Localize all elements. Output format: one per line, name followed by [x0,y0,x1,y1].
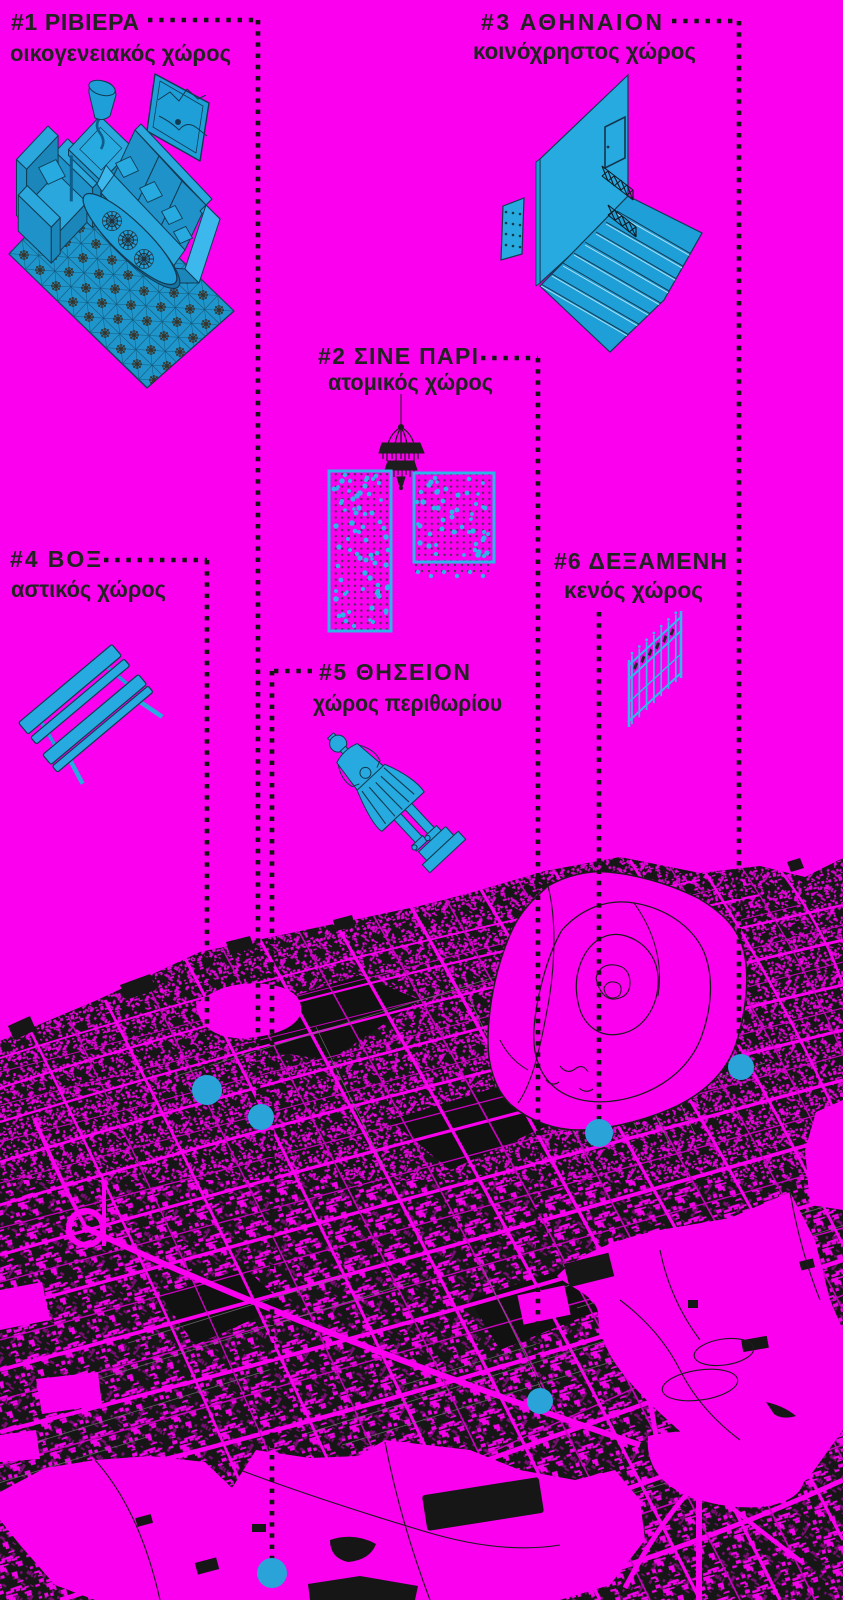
svg-text:κοινόχρηστος χώρος: κοινόχρηστος χώρος [473,38,696,64]
svg-text:ατομικός χώρος: ατομικός χώρος [328,369,493,395]
svg-text:#2 ΣΙΝΕ ΠΑΡΙ: #2 ΣΙΝΕ ΠΑΡΙ [318,343,478,369]
svg-text:#3 ΑΘΗΝΑΙΟΝ: #3 ΑΘΗΝΑΙΟΝ [481,9,662,35]
svg-text:#6 ΔΕΞΑΜΕΝΗ: #6 ΔΕΞΑΜΕΝΗ [554,548,727,574]
svg-text:#1 ΡΙΒΙΕΡΑ: #1 ΡΙΒΙΕΡΑ [11,9,139,35]
svg-text:κενός χώρος: κενός χώρος [564,577,703,603]
svg-text:χώρος περιθωρίου: χώρος περιθωρίου [313,690,502,716]
svg-text:#5 ΘΗΣΕΙΟΝ: #5 ΘΗΣΕΙΟΝ [319,659,470,685]
svg-text:οικογενειακός χώρος: οικογενειακός χώρος [10,40,231,66]
svg-text:αστικός χώρος: αστικός χώρος [11,576,166,602]
